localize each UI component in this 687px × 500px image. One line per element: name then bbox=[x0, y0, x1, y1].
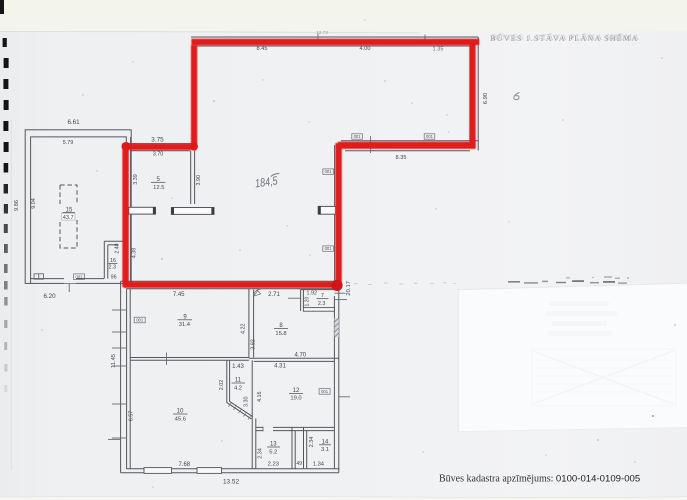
svg-text:2.71: 2.71 bbox=[268, 292, 280, 298]
svg-text:4.22: 4.22 bbox=[241, 323, 247, 334]
svg-text:8.35: 8.35 bbox=[396, 155, 407, 161]
svg-text:4.31: 4.31 bbox=[274, 363, 286, 369]
svg-text:001: 001 bbox=[354, 134, 362, 139]
svg-text:3.92: 3.92 bbox=[251, 339, 257, 350]
svg-text:5.2: 5.2 bbox=[269, 449, 277, 455]
svg-text:001: 001 bbox=[321, 389, 329, 394]
svg-text:4.38: 4.38 bbox=[132, 248, 138, 259]
svg-text:2.3: 2.3 bbox=[318, 301, 326, 307]
svg-text:7: 7 bbox=[321, 293, 324, 299]
svg-text:1.43: 1.43 bbox=[232, 364, 244, 370]
svg-text:20.17: 20.17 bbox=[346, 281, 352, 296]
svg-text:BŪVES 1.STĀVA PLĀNA SHĒMA: BŪVES 1.STĀVA PLĀNA SHĒMA bbox=[492, 33, 640, 42]
svg-text:16: 16 bbox=[110, 258, 116, 264]
svg-text:9.04: 9.04 bbox=[31, 198, 37, 209]
svg-text:4.16: 4.16 bbox=[257, 391, 263, 402]
svg-text:13.52: 13.52 bbox=[223, 479, 239, 486]
svg-text:96: 96 bbox=[111, 275, 117, 281]
svg-text:11.45: 11.45 bbox=[111, 354, 117, 368]
svg-text:1.92: 1.92 bbox=[307, 291, 318, 297]
svg-text:15.8: 15.8 bbox=[275, 331, 286, 337]
svg-text:12.5: 12.5 bbox=[153, 185, 164, 191]
svg-text:2.3: 2.3 bbox=[109, 264, 117, 270]
svg-text:2.34: 2.34 bbox=[257, 448, 263, 459]
svg-text:8.45: 8.45 bbox=[257, 46, 268, 52]
svg-text:001: 001 bbox=[136, 318, 144, 323]
svg-text:6.20: 6.20 bbox=[43, 293, 56, 300]
svg-text:1.20: 1.20 bbox=[305, 297, 311, 307]
svg-text:1.35: 1.35 bbox=[433, 47, 444, 53]
svg-text:Būves kadastra apzīmējums: 010: Būves kadastra apzīmējums: 0100-014-0109… bbox=[439, 474, 640, 485]
svg-text:31.4: 31.4 bbox=[179, 322, 191, 328]
svg-text:6.57: 6.57 bbox=[129, 411, 135, 422]
svg-text:6.90: 6.90 bbox=[483, 93, 489, 104]
svg-text:3.30: 3.30 bbox=[243, 396, 249, 407]
svg-text:7.45: 7.45 bbox=[173, 292, 185, 298]
svg-text:001: 001 bbox=[325, 169, 333, 174]
svg-text:2.02: 2.02 bbox=[219, 380, 225, 391]
svg-text:001: 001 bbox=[426, 134, 434, 139]
svg-text:4.00: 4.00 bbox=[360, 46, 371, 52]
svg-text:9.86: 9.86 bbox=[14, 200, 20, 211]
svg-text:2.23: 2.23 bbox=[268, 461, 279, 467]
svg-text:3.1: 3.1 bbox=[321, 447, 329, 453]
svg-text:5.79: 5.79 bbox=[63, 140, 74, 146]
svg-text:45.6: 45.6 bbox=[175, 416, 186, 422]
svg-text:4.70: 4.70 bbox=[294, 352, 306, 358]
svg-text:43.7: 43.7 bbox=[63, 215, 74, 221]
svg-text:001: 001 bbox=[76, 274, 84, 279]
svg-text:001: 001 bbox=[325, 246, 333, 251]
svg-text:12.73: 12.73 bbox=[316, 30, 328, 35]
svg-text:2.34: 2.34 bbox=[309, 437, 315, 448]
svg-text:7.68: 7.68 bbox=[178, 462, 190, 468]
svg-text:3.70: 3.70 bbox=[153, 151, 164, 157]
svg-text:19.0: 19.0 bbox=[290, 396, 301, 402]
svg-text:1.34: 1.34 bbox=[313, 462, 325, 468]
svg-text:3.39: 3.39 bbox=[133, 174, 139, 185]
svg-text:3.90: 3.90 bbox=[196, 175, 202, 186]
svg-text:2.40: 2.40 bbox=[115, 243, 121, 253]
svg-text:6.61: 6.61 bbox=[67, 119, 80, 126]
svg-text:49: 49 bbox=[296, 461, 302, 467]
svg-text:4.2: 4.2 bbox=[234, 385, 242, 391]
svg-text:3.75: 3.75 bbox=[151, 137, 164, 144]
